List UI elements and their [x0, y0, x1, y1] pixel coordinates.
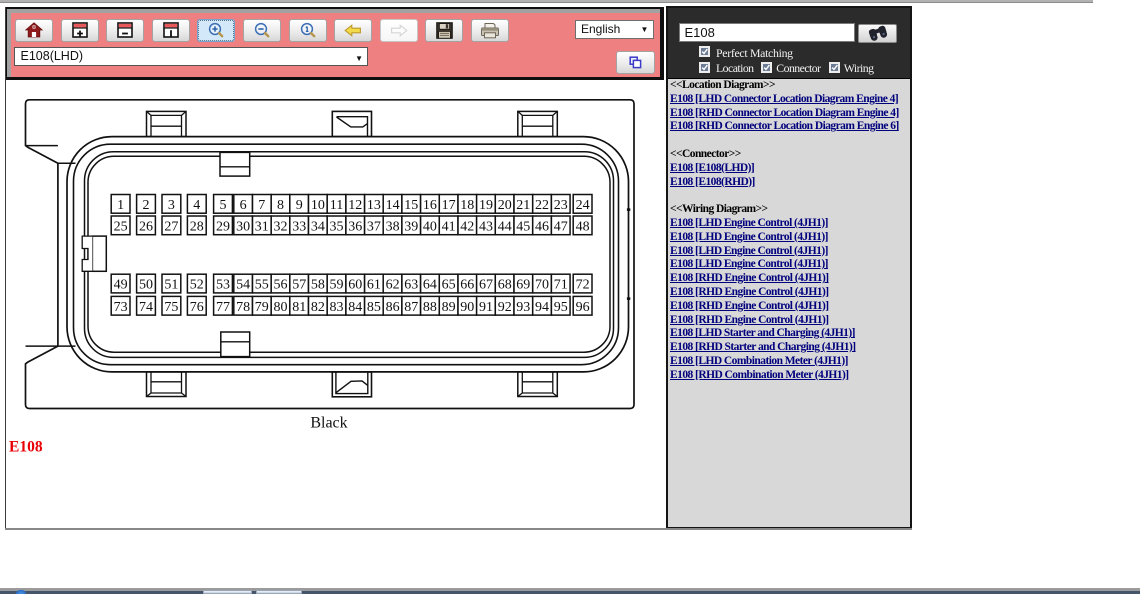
svg-text:53: 53 — [216, 278, 230, 293]
svg-text:60: 60 — [348, 278, 362, 293]
svg-text:27: 27 — [164, 219, 178, 234]
svg-text:30: 30 — [236, 219, 250, 234]
svg-text:84: 84 — [348, 300, 362, 315]
svg-text:15: 15 — [404, 198, 418, 213]
svg-text:64: 64 — [423, 278, 437, 293]
svg-text:39: 39 — [404, 219, 418, 234]
svg-text:77: 77 — [216, 300, 230, 315]
svg-text:62: 62 — [386, 278, 400, 293]
svg-text:31: 31 — [255, 219, 269, 234]
svg-text:87: 87 — [404, 300, 418, 315]
svg-text:61: 61 — [367, 278, 381, 293]
svg-text:22: 22 — [535, 198, 549, 213]
svg-text:37: 37 — [367, 219, 381, 234]
svg-text:20: 20 — [498, 198, 512, 213]
svg-text:91: 91 — [479, 300, 493, 315]
svg-text:11: 11 — [330, 198, 343, 213]
svg-text:67: 67 — [479, 278, 493, 293]
svg-text:36: 36 — [348, 219, 362, 234]
svg-text:48: 48 — [576, 219, 590, 234]
svg-text:13: 13 — [367, 198, 381, 213]
svg-text:38: 38 — [386, 219, 400, 234]
svg-text:58: 58 — [311, 278, 325, 293]
svg-text:3: 3 — [168, 198, 175, 213]
svg-text:34: 34 — [311, 219, 325, 234]
svg-text:88: 88 — [423, 300, 437, 315]
svg-text:80: 80 — [274, 300, 288, 315]
svg-text:52: 52 — [190, 278, 204, 293]
svg-text:7: 7 — [258, 198, 265, 213]
svg-text:23: 23 — [554, 198, 568, 213]
svg-text:68: 68 — [498, 278, 512, 293]
svg-text:79: 79 — [255, 300, 269, 315]
svg-text:54: 54 — [236, 278, 250, 293]
svg-text:71: 71 — [554, 278, 568, 293]
svg-text:90: 90 — [460, 300, 474, 315]
svg-text:17: 17 — [442, 198, 456, 213]
svg-text:94: 94 — [535, 300, 549, 315]
svg-text:43: 43 — [479, 219, 493, 234]
svg-text:40: 40 — [423, 219, 437, 234]
svg-text:1: 1 — [117, 198, 124, 213]
svg-text:32: 32 — [274, 219, 288, 234]
svg-text:51: 51 — [164, 278, 178, 293]
svg-text:56: 56 — [274, 278, 288, 293]
svg-text:73: 73 — [114, 300, 128, 315]
svg-text:14: 14 — [386, 198, 400, 213]
svg-text:85: 85 — [367, 300, 381, 315]
svg-text:28: 28 — [190, 219, 204, 234]
svg-text:46: 46 — [535, 219, 549, 234]
svg-text:49: 49 — [114, 278, 128, 293]
svg-text:95: 95 — [554, 300, 568, 315]
svg-text:E108: E108 — [9, 439, 43, 456]
svg-text:66: 66 — [460, 278, 474, 293]
svg-text:2: 2 — [143, 198, 150, 213]
svg-text:6: 6 — [240, 198, 247, 213]
svg-text:93: 93 — [516, 300, 530, 315]
svg-text:26: 26 — [139, 219, 153, 234]
svg-text:41: 41 — [442, 219, 456, 234]
svg-text:70: 70 — [535, 278, 549, 293]
svg-text:45: 45 — [516, 219, 530, 234]
svg-text:59: 59 — [330, 278, 344, 293]
svg-text:19: 19 — [479, 198, 493, 213]
svg-text:33: 33 — [292, 219, 306, 234]
svg-text:24: 24 — [576, 198, 590, 213]
svg-text:9: 9 — [296, 198, 303, 213]
svg-text:Black: Black — [310, 415, 347, 432]
svg-text:63: 63 — [404, 278, 418, 293]
svg-text:4: 4 — [193, 198, 200, 213]
svg-text:12: 12 — [348, 198, 362, 213]
svg-text:96: 96 — [576, 300, 590, 315]
svg-text:42: 42 — [460, 219, 474, 234]
svg-text:92: 92 — [498, 300, 512, 315]
svg-text:47: 47 — [554, 219, 568, 234]
svg-text:29: 29 — [216, 219, 230, 234]
svg-text:82: 82 — [311, 300, 325, 315]
svg-text:81: 81 — [292, 300, 306, 315]
svg-text:18: 18 — [460, 198, 474, 213]
svg-text:76: 76 — [190, 300, 204, 315]
svg-text:5: 5 — [220, 198, 227, 213]
svg-text:69: 69 — [516, 278, 530, 293]
svg-text:44: 44 — [498, 219, 512, 234]
svg-text:21: 21 — [516, 198, 530, 213]
svg-text:72: 72 — [576, 278, 590, 293]
svg-text:25: 25 — [114, 219, 128, 234]
svg-text:75: 75 — [164, 300, 178, 315]
svg-text:57: 57 — [292, 278, 306, 293]
svg-text:8: 8 — [277, 198, 284, 213]
svg-text:83: 83 — [330, 300, 344, 315]
svg-text:50: 50 — [139, 278, 153, 293]
svg-text:78: 78 — [236, 300, 250, 315]
svg-text:65: 65 — [442, 278, 456, 293]
svg-text:35: 35 — [330, 219, 344, 234]
svg-text:16: 16 — [423, 198, 437, 213]
svg-text:55: 55 — [255, 278, 269, 293]
svg-text:74: 74 — [139, 300, 153, 315]
svg-text:86: 86 — [386, 300, 400, 315]
svg-text:89: 89 — [442, 300, 456, 315]
svg-text:10: 10 — [311, 198, 325, 213]
